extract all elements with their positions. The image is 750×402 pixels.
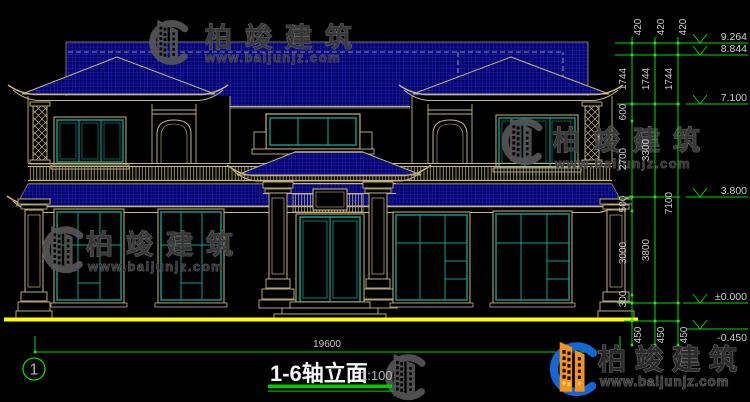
elevation-8844: 8.844 (721, 43, 747, 55)
window-1f-3 (390, 212, 473, 307)
ground-line (4, 318, 638, 322)
dimension-chains: 420 420 420 1744 1744 1744 600 2700 500 … (615, 18, 748, 346)
drawing-title: 1-6轴立面 (270, 361, 368, 386)
brand-logo-color-icon (554, 342, 593, 392)
drawing-scale: 1:100 (360, 368, 393, 383)
title-underline-thick (268, 385, 392, 389)
elevation-triangles (693, 34, 707, 329)
left-lattice-column (30, 102, 50, 164)
dim-3800: 3800 (641, 238, 652, 261)
dim-7100: 7100 (664, 191, 675, 214)
dim-420-a: 420 (633, 18, 644, 35)
watermark-url-text: www.baijunjz.com (87, 259, 224, 274)
dim-450-a: 450 (633, 326, 644, 343)
watermark-brand-text: 柏竣建筑 (86, 229, 246, 260)
dim-2700: 2700 (618, 147, 629, 170)
watermark-bottom-logo-icon (389, 354, 422, 397)
dim-420-c: 420 (678, 18, 689, 35)
watermark-brand-text: 柏竣建筑 (553, 125, 713, 156)
elevation-drawing: 柏竣建筑 www.baijunjz.com 柏竣建筑 www.baijunjz.… (0, 0, 750, 402)
elevation-3800: 3.800 (721, 185, 747, 197)
title-underline-thin (268, 391, 394, 392)
dim-450-c: 450 (679, 326, 690, 343)
elevation-0000: ±0.000 (715, 291, 747, 303)
clerestory-window (252, 114, 374, 154)
footer-url-text: www.baijunjz.com (599, 374, 729, 389)
elevation-7100: 7.100 (721, 92, 747, 104)
entrance-door (296, 214, 364, 302)
watermark-brand-text: 柏竣建筑 (205, 22, 365, 53)
dim-420-b: 420 (656, 18, 667, 35)
dim-19600: 19600 (313, 339, 341, 350)
dim-1744-b: 1744 (641, 67, 652, 90)
window-1f-4 (490, 211, 575, 307)
cad-canvas: 柏竣建筑 www.baijunjz.com 柏竣建筑 www.baijunjz.… (0, 0, 750, 402)
footer-brand: 柏竣建筑 www.baijunjz.com (554, 342, 746, 392)
elevation-neg450: -0.450 (717, 332, 747, 344)
footer-brand-text: 柏竣建筑 (598, 343, 746, 375)
watermark-url-text: www.baijunjz.com (204, 50, 341, 65)
dim-3000: 3000 (618, 241, 629, 264)
dim-300: 300 (618, 290, 629, 307)
dim-450-b: 450 (656, 326, 667, 343)
overall-width-dimension: 19600 (34, 336, 622, 353)
dim-1744-a: 1744 (618, 67, 629, 90)
title-block: 1-6轴立面 1:100 (268, 361, 394, 392)
dim-1744-c: 1744 (664, 67, 675, 90)
dim-600: 600 (618, 103, 629, 120)
dim-500: 500 (618, 195, 629, 212)
entrance-steps (274, 302, 386, 319)
dim-3300: 3300 (641, 138, 652, 161)
axis-bubble-label: 1 (30, 362, 39, 379)
axis-bubble-1: 1 (23, 358, 45, 380)
window-2f-left (51, 117, 129, 169)
elevation-9264: 9.264 (721, 31, 747, 43)
